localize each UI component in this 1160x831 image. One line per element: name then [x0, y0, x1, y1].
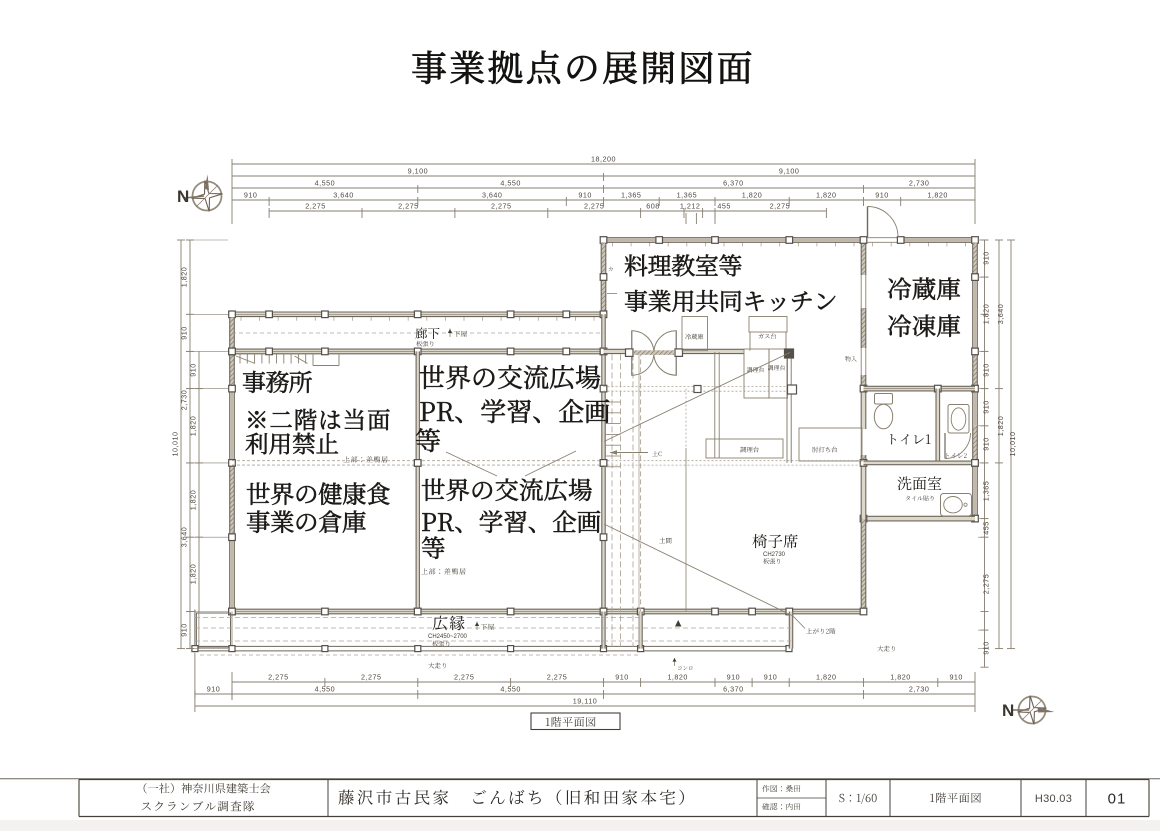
svg-text:2,730: 2,730: [909, 685, 930, 694]
svg-text:910: 910: [982, 641, 991, 655]
svg-text:1,820: 1,820: [189, 564, 198, 585]
svg-text:1,820: 1,820: [816, 191, 837, 200]
svg-text:3,640: 3,640: [482, 191, 503, 200]
svg-text:1,212: 1,212: [680, 202, 701, 211]
svg-text:1,365: 1,365: [621, 191, 642, 200]
svg-text:4,550: 4,550: [500, 685, 521, 694]
svg-text:10,010: 10,010: [1008, 432, 1017, 457]
svg-text:4,550: 4,550: [500, 179, 521, 188]
svg-text:H30.03: H30.03: [1035, 793, 1072, 805]
svg-text:910: 910: [578, 191, 592, 200]
svg-text:910: 910: [615, 673, 629, 682]
svg-text:CH2450~2700: CH2450~2700: [428, 634, 468, 640]
svg-text:1,820: 1,820: [667, 673, 688, 682]
svg-text:3,640: 3,640: [180, 527, 189, 548]
svg-text:CH2730: CH2730: [763, 552, 786, 558]
svg-text:2,275: 2,275: [770, 202, 791, 211]
svg-text:2,275: 2,275: [398, 202, 419, 211]
svg-text:3,640: 3,640: [333, 191, 354, 200]
svg-text:1,820: 1,820: [189, 416, 198, 437]
svg-text:3,640: 3,640: [996, 304, 1005, 325]
svg-text:2,275: 2,275: [547, 673, 568, 682]
svg-text:910: 910: [982, 437, 991, 451]
svg-text:6,370: 6,370: [723, 685, 744, 694]
svg-text:1,820: 1,820: [890, 673, 911, 682]
svg-text:1,820: 1,820: [180, 267, 189, 288]
svg-text:2,730: 2,730: [909, 179, 930, 188]
svg-text:18,200: 18,200: [591, 155, 616, 164]
svg-text:1,820: 1,820: [996, 416, 1005, 437]
svg-text:910: 910: [982, 251, 991, 265]
svg-text:1,820: 1,820: [927, 191, 948, 200]
svg-text:2,275: 2,275: [454, 673, 475, 682]
svg-text:6,370: 6,370: [723, 179, 744, 188]
svg-text:2,275: 2,275: [584, 202, 605, 211]
svg-text:1,820: 1,820: [982, 304, 991, 325]
svg-text:2,275: 2,275: [268, 673, 289, 682]
svg-text:9,100: 9,100: [779, 167, 800, 176]
svg-text:N: N: [177, 187, 189, 206]
svg-text:1,820: 1,820: [816, 673, 837, 682]
svg-text:910: 910: [207, 685, 221, 694]
svg-text:910: 910: [727, 673, 741, 682]
svg-text:10,010: 10,010: [171, 432, 180, 457]
svg-text:4,550: 4,550: [315, 685, 336, 694]
svg-text:1,820: 1,820: [189, 490, 198, 511]
svg-text:910: 910: [764, 673, 778, 682]
svg-text:2,730: 2,730: [180, 390, 189, 411]
svg-text:910: 910: [982, 363, 991, 377]
svg-text:2,275: 2,275: [305, 202, 326, 211]
svg-text:455: 455: [717, 202, 731, 211]
svg-text:2,275: 2,275: [982, 574, 991, 595]
svg-text:910: 910: [875, 191, 889, 200]
svg-text:2,275: 2,275: [491, 202, 512, 211]
svg-text:910: 910: [180, 623, 189, 637]
svg-text:9,100: 9,100: [408, 167, 429, 176]
svg-text:1,365: 1,365: [982, 481, 991, 502]
svg-text:2,275: 2,275: [361, 673, 382, 682]
svg-text:19,110: 19,110: [573, 697, 597, 706]
svg-text:910: 910: [244, 191, 258, 200]
svg-text:910: 910: [180, 326, 189, 340]
svg-text:4,550: 4,550: [315, 179, 336, 188]
svg-text:N: N: [1002, 701, 1014, 720]
svg-text:910: 910: [189, 363, 198, 377]
svg-text:608: 608: [646, 202, 660, 211]
svg-text:1,365: 1,365: [677, 191, 698, 200]
svg-text:1,820: 1,820: [742, 191, 763, 200]
svg-text:910: 910: [982, 400, 991, 414]
svg-text:01: 01: [1108, 791, 1127, 808]
svg-text:910: 910: [949, 673, 963, 682]
svg-text:455: 455: [982, 521, 991, 535]
